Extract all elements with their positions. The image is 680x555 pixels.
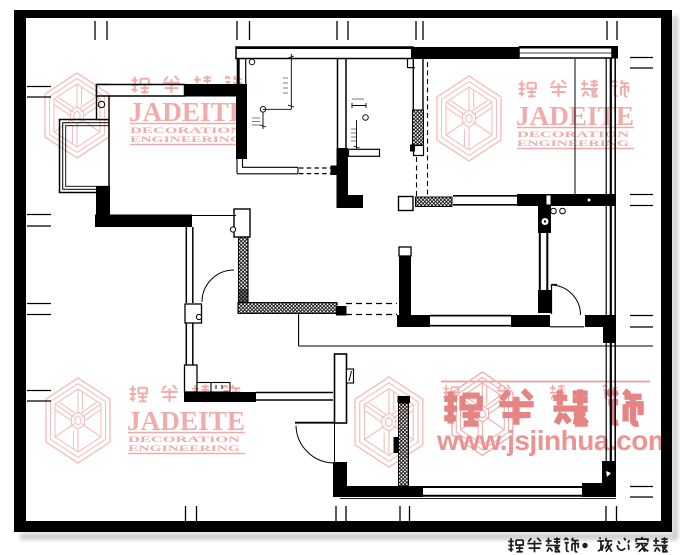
svg-text:www.jsjinhua.com: www.jsjinhua.com xyxy=(436,425,672,456)
svg-text:JADEITE: JADEITE xyxy=(127,406,245,436)
svg-text:JADEITE: JADEITE xyxy=(129,97,247,127)
svg-text:JADEITE: JADEITE xyxy=(516,101,634,131)
svg-text:ENGINEERING: ENGINEERING xyxy=(130,134,243,144)
svg-text:ENGINEERING: ENGINEERING xyxy=(128,443,241,453)
svg-text:ENGINEERING: ENGINEERING xyxy=(517,138,630,148)
